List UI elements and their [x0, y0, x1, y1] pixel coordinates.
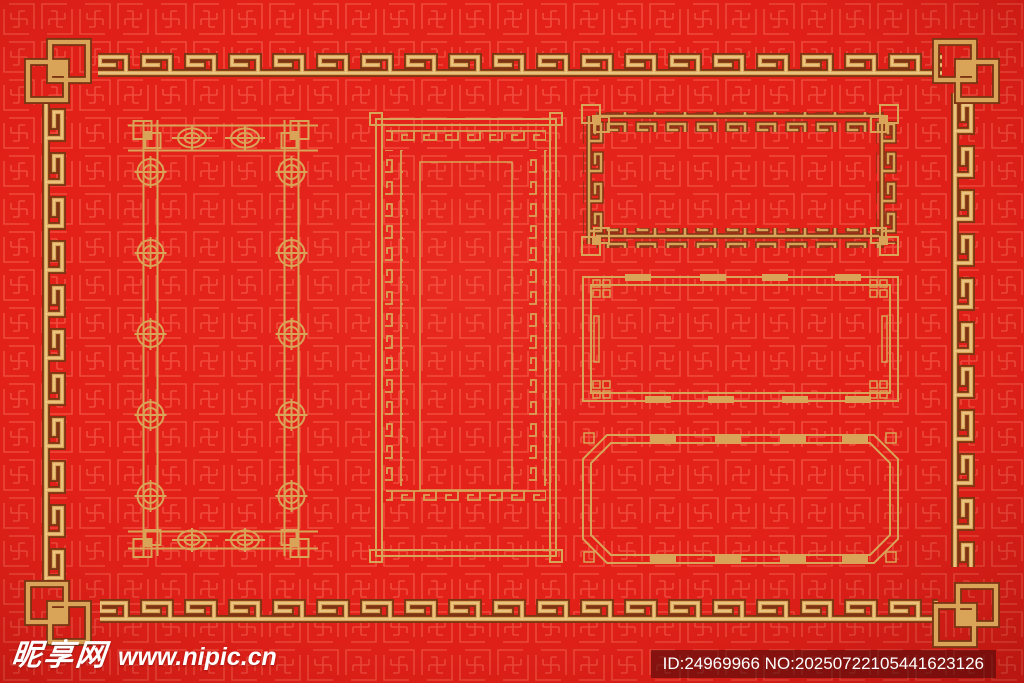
chinese-border-art-canvas: 昵享网 www.nipic.cn ID:24969966 NO:20250722… [0, 0, 1024, 683]
watermark-site: 昵享网 www.nipic.cn [12, 630, 277, 674]
watermark-site-name: 昵享网 [10, 630, 111, 674]
decorative-border-graphic [0, 0, 1024, 683]
watermark-site-url: www.nipic.cn [118, 643, 277, 672]
watermark-id-text: ID:24969966 NO:20250722105441623126 [663, 654, 984, 673]
watermark-id-badge: ID:24969966 NO:20250722105441623126 [651, 650, 996, 678]
